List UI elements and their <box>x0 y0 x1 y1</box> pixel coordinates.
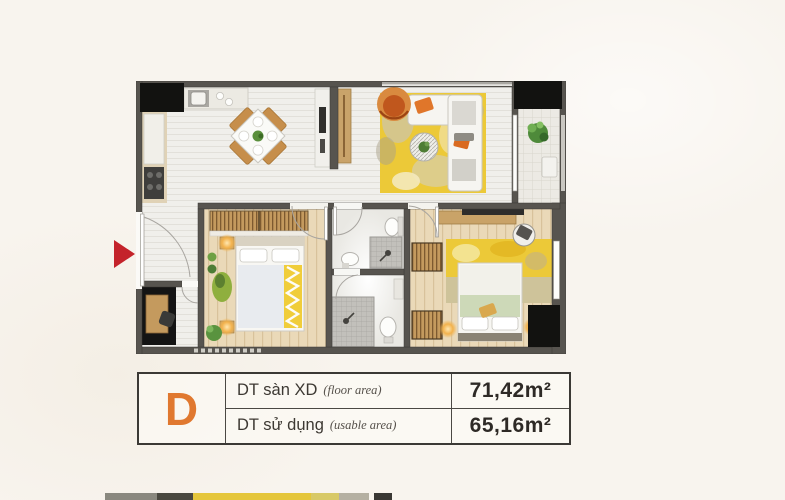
floor-area-label: DT sàn XD (floor area) <box>226 374 451 409</box>
next-floorplan-strip-segment <box>157 493 193 500</box>
floor-plan <box>136 81 566 354</box>
next-floorplan-strip-segment <box>374 493 392 500</box>
bedroom2-tv-console <box>436 209 524 224</box>
unit-letter: D <box>139 374 226 443</box>
floor-area-label-en: (floor area) <box>323 383 381 398</box>
entrance-arrow-icon <box>114 240 135 268</box>
usable-area-label: DT sử dụng (usable area) <box>226 409 451 444</box>
bedroom2-bed <box>458 263 522 341</box>
floor-area-label-vi: DT sàn XD <box>237 381 317 400</box>
bedroom2-wardrobe <box>412 311 442 339</box>
floor-area-value: 71,42m² <box>451 374 569 409</box>
page-background: D DT sàn XD (floor area) 71,42m² DT sử d… <box>0 0 785 500</box>
shaft-kitchen <box>140 83 184 112</box>
bedroom1-bed <box>236 237 304 331</box>
bedroom2-wardrobe <box>412 243 442 271</box>
bedroom2-lamp-glow <box>439 320 457 338</box>
balcony-ac-unit <box>542 157 557 177</box>
shaft-balcony <box>514 81 562 109</box>
shaft-bedroom2 <box>528 305 560 347</box>
next-floorplan-strip-segment <box>105 493 157 500</box>
armchair <box>377 87 411 121</box>
next-floorplan-strip-segment <box>311 493 339 500</box>
bedroom2-desk-chair <box>513 224 535 246</box>
floor-plan-drawing <box>136 81 566 354</box>
next-floorplan-strip-segment <box>193 493 311 500</box>
next-floorplan-strip-segment <box>339 493 369 500</box>
next-floorplan-strip <box>0 493 785 500</box>
area-info-table: D DT sàn XD (floor area) 71,42m² DT sử d… <box>137 372 571 445</box>
coffee-table <box>410 133 438 161</box>
usable-area-value: 65,16m² <box>451 409 569 444</box>
bedroom1-lamp-glow <box>218 234 236 252</box>
usable-area-label-en: (usable area) <box>330 418 397 433</box>
entry-desk <box>142 287 176 345</box>
usable-area-label-vi: DT sử dụng <box>237 416 324 435</box>
